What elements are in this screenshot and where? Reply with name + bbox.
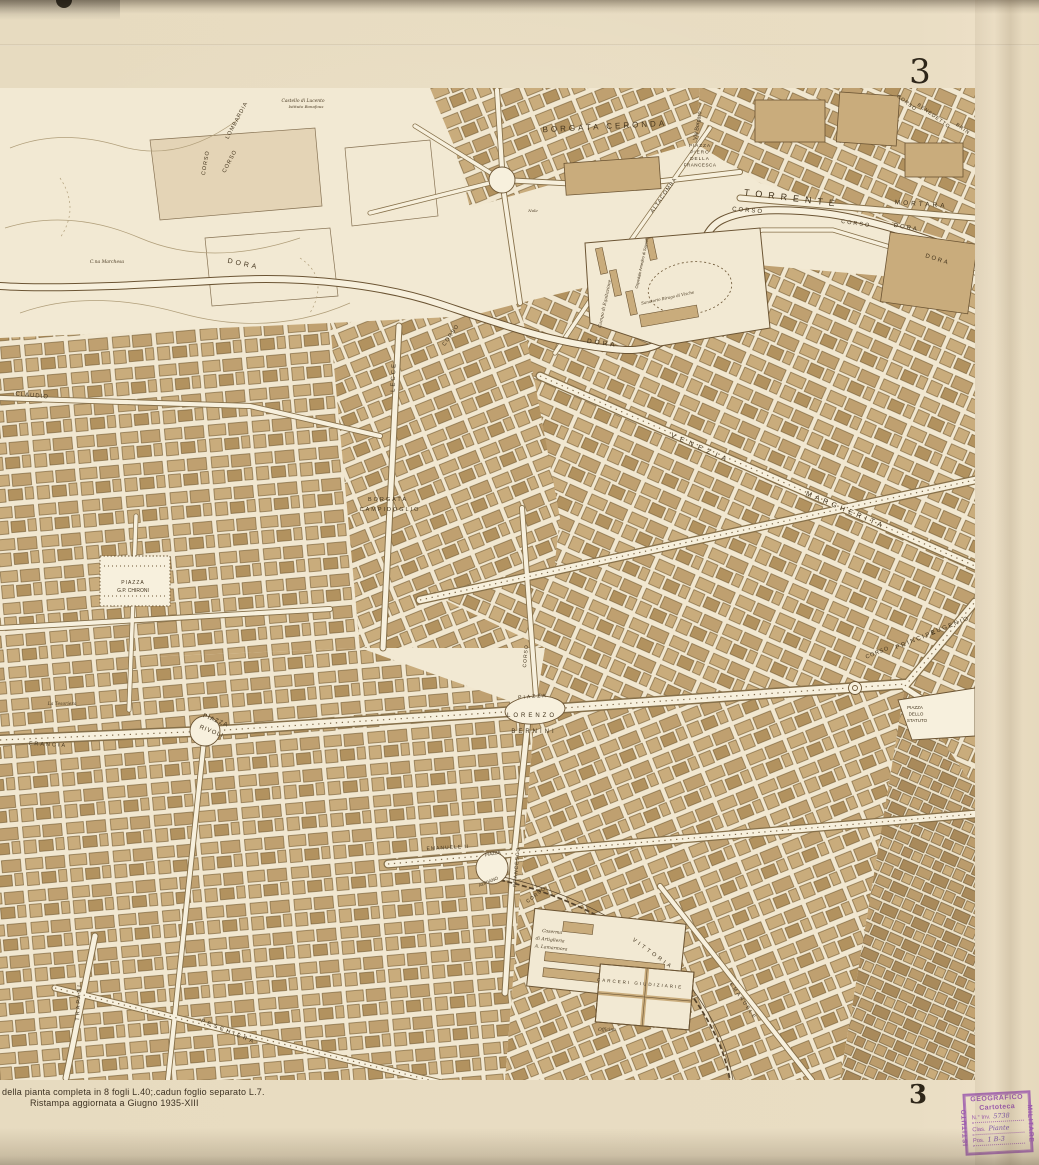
- map-label: LECCE: [390, 362, 397, 392]
- imprint-line1: della pianta completa in 8 fogli L.40;.c…: [2, 1087, 302, 1098]
- map-canvas: BORGATA CERONDAVia BorgaroPIAZZAPIERODEL…: [0, 88, 975, 1080]
- map-label: STATUTO: [907, 718, 928, 723]
- map-label: Officine: [598, 1027, 616, 1033]
- sheet-number-top: 3: [900, 52, 940, 92]
- map-label: Istituto Bonafous: [288, 104, 324, 109]
- map-label: La Tesoriera: [47, 701, 77, 707]
- map-label: BORGATA: [368, 497, 408, 503]
- paper-edge-bottom: [0, 1128, 1039, 1165]
- paper-fold-right: [975, 0, 1039, 1165]
- map-label: PIERO: [690, 150, 709, 155]
- map-label: BERNINI: [511, 729, 556, 735]
- imprint-line2: Ristampa aggiornata a Giugno 1935-XIII: [30, 1098, 302, 1109]
- map-label: DELLA: [690, 156, 710, 161]
- edition-imprint: della pianta completa in 8 fogli L.40;.c…: [2, 1087, 302, 1109]
- map-label: CAMPIDOGLIO: [360, 507, 421, 513]
- map-label: Nole: [527, 208, 538, 213]
- map-label: FRANCESCA: [684, 163, 717, 168]
- paper-edge-top: [0, 0, 1039, 14]
- sheet-number-bottom: 3: [898, 1080, 938, 1110]
- map-label: G.P. CHIRONI: [117, 588, 149, 594]
- map-label: PIAZZA: [689, 143, 711, 148]
- map-label: PIAZZA: [907, 705, 923, 710]
- map-label: C.na Marchesa: [90, 259, 125, 265]
- map-label: LORENZO: [507, 713, 557, 719]
- map-label: PIAZZA: [121, 580, 145, 586]
- map-sheet: 3: [0, 0, 1039, 1165]
- paper-crease: [0, 44, 1039, 46]
- city-map: BORGATA CERONDAVia BorgaroPIAZZAPIERODEL…: [0, 88, 975, 1080]
- map-label: DELLO: [909, 712, 924, 717]
